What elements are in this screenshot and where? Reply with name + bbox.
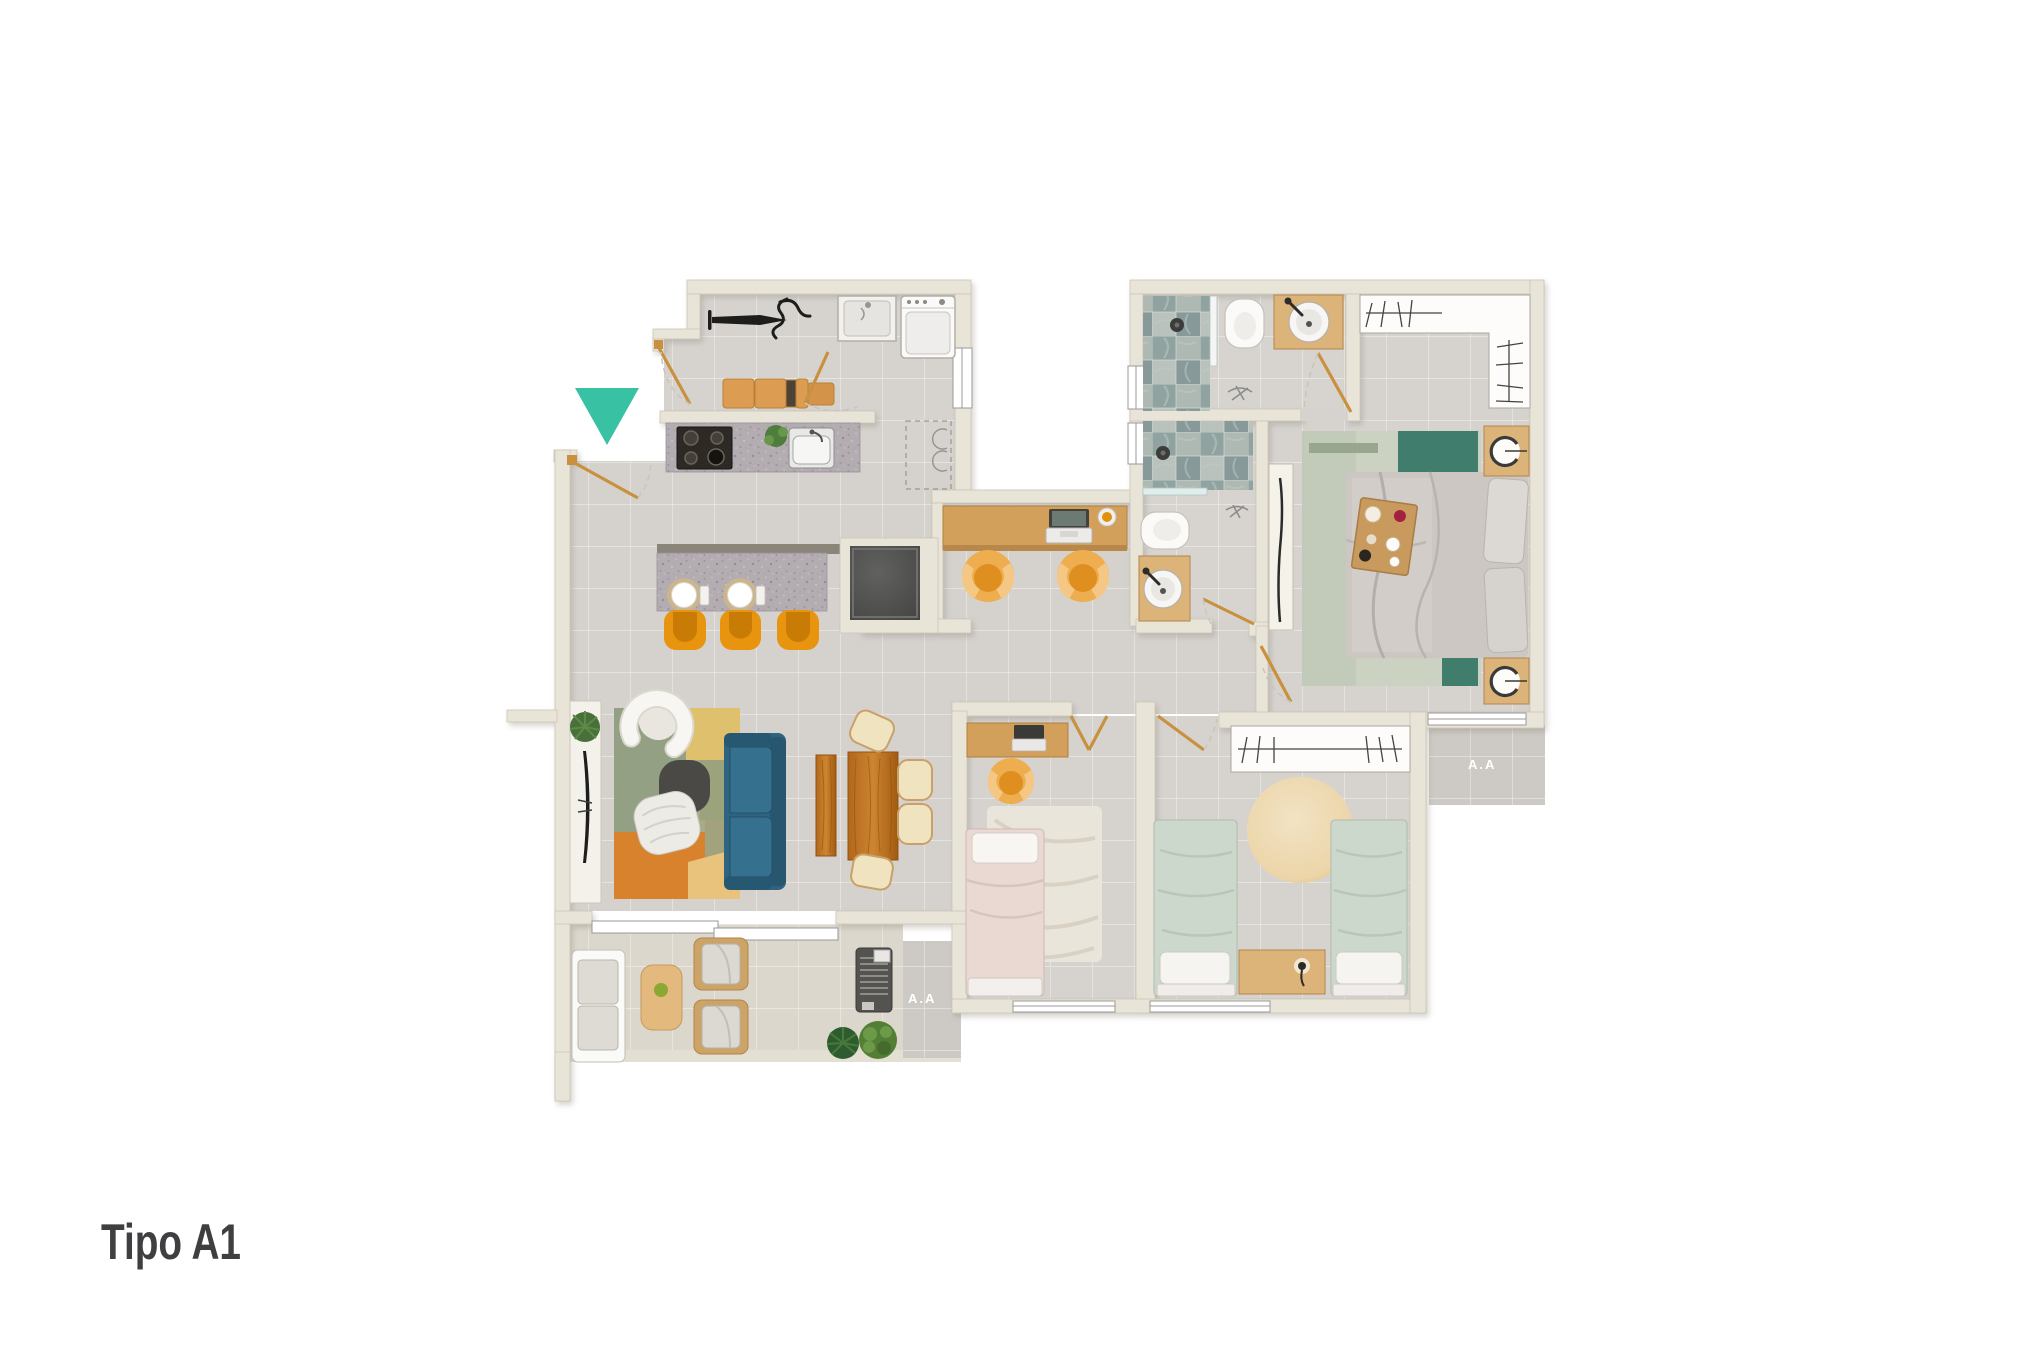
svg-text:A.A: A.A	[908, 991, 936, 1006]
svg-text:A.A: A.A	[1468, 757, 1496, 772]
svg-text:Tipo A1: Tipo A1	[101, 1214, 241, 1270]
